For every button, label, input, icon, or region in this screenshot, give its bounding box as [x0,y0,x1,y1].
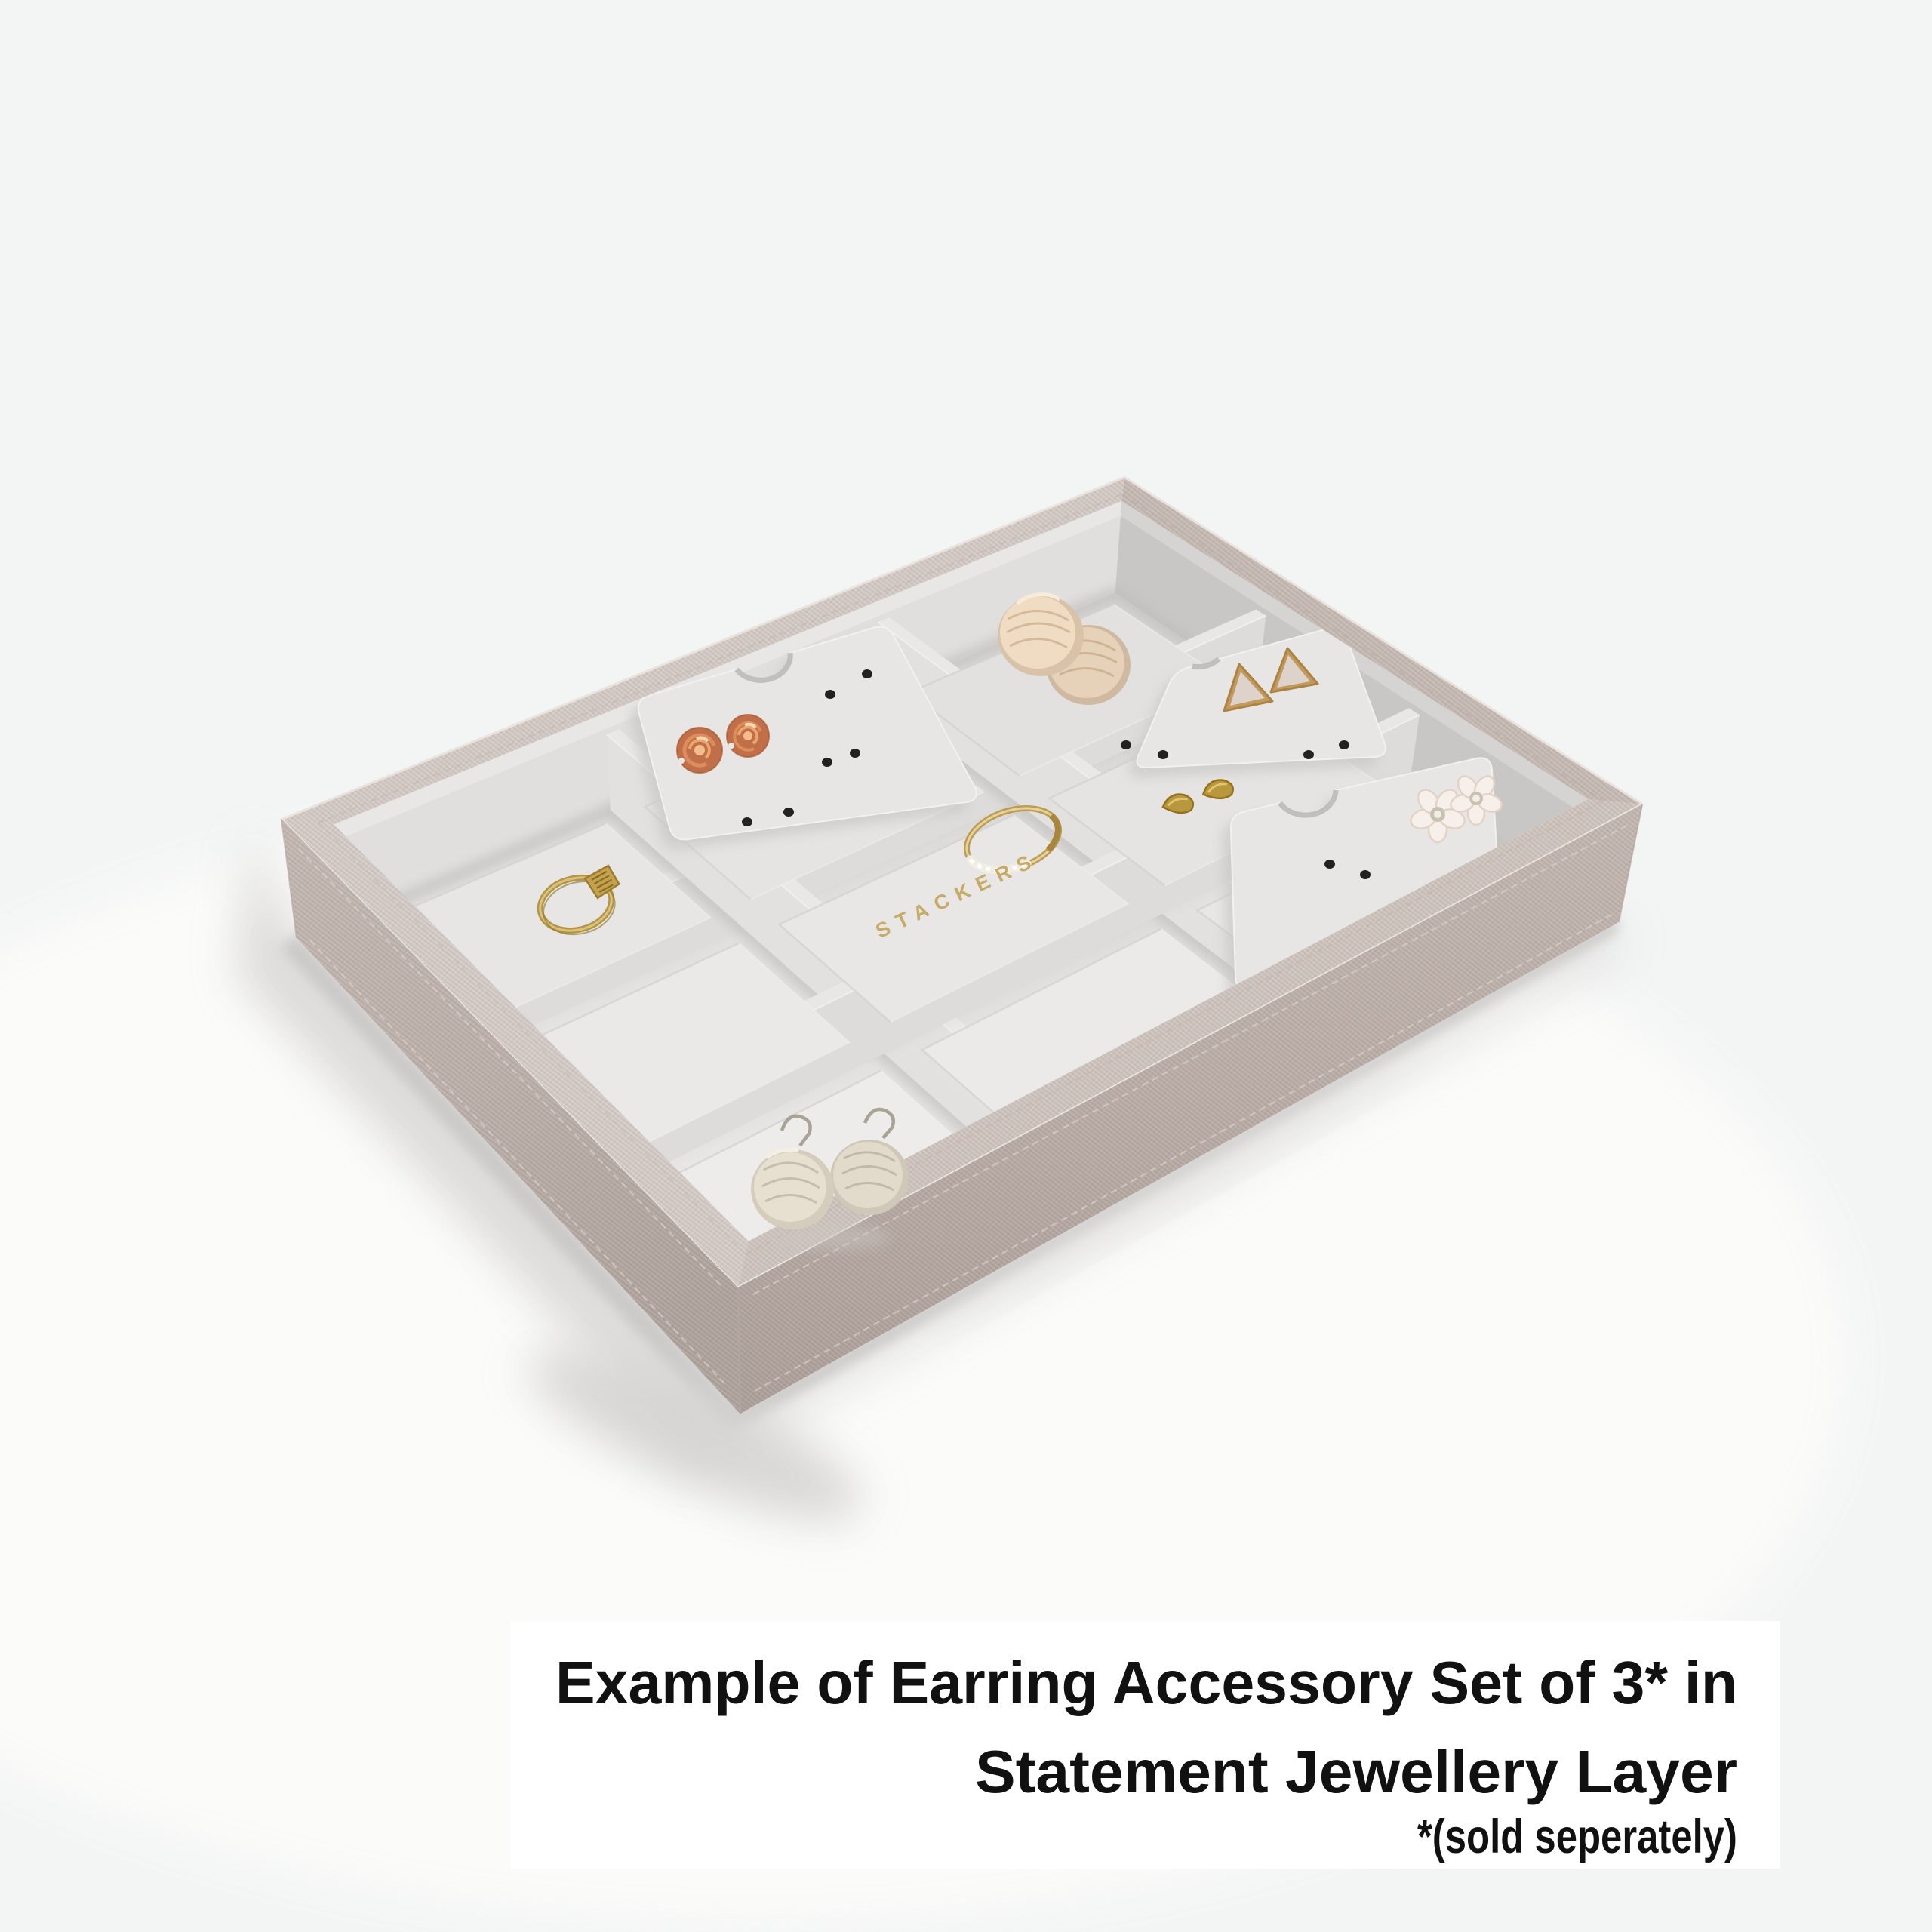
svg-text:Statement Jewellery Layer: Statement Jewellery Layer [975,1738,1737,1805]
svg-text:Example of Earring Accessory S: Example of Earring Accessory Set of 3* i… [555,1649,1737,1716]
svg-text:*(sold seperately): *(sold seperately) [1417,1810,1737,1863]
